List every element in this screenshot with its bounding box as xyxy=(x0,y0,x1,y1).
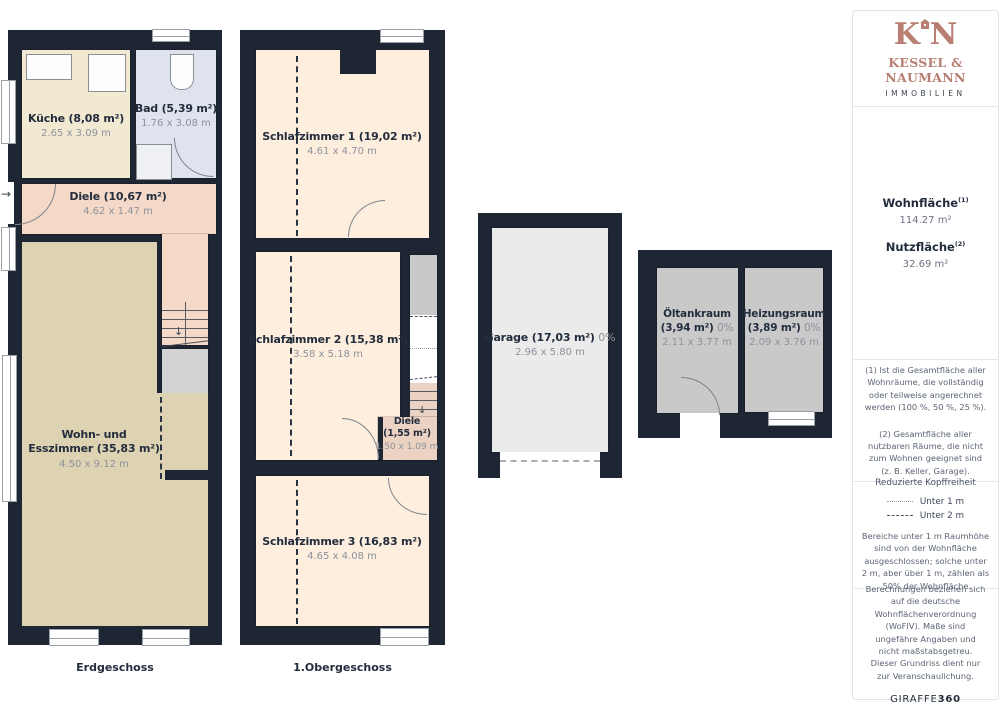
room-area: (3,94 m²) xyxy=(661,322,714,334)
stairs-down-arrow-icon: ↓ xyxy=(174,326,183,337)
room-label-bad: Bad (5,39 m²) 1.76 x 3.08 m xyxy=(126,102,226,130)
wall-segment xyxy=(340,44,376,74)
footnotes-section: (1) Ist die Gesamtfläche aller Wohnräume… xyxy=(853,359,998,481)
room-name: Heizungsraum xyxy=(739,308,829,322)
room-name: Garage (17,03 m²) xyxy=(485,331,595,344)
wohnflaeche-text: Wohnfläche xyxy=(882,196,958,210)
window xyxy=(380,628,429,646)
oeltankraum-door-opening xyxy=(680,413,720,438)
brand-subtitle: IMMOBILIEN xyxy=(885,89,965,98)
room-label-kueche: Küche (8,08 m²) 2.65 x 3.09 m xyxy=(6,112,146,140)
room-name: Bad (5,39 m²) xyxy=(135,102,217,115)
nutzflaeche-value: 32.69 m² xyxy=(903,259,949,270)
giraffe360-credit: GIRAFFE360 xyxy=(890,694,961,705)
floorplan-page: ↓ → Küche (8,08 m²) 2.65 x 3. xyxy=(0,0,1000,707)
stove-icon xyxy=(88,54,126,92)
wohnflaeche-label: Wohnfläche(1) xyxy=(882,196,968,210)
footnote-1: (1) Ist die Gesamtfläche aller Wohnräume… xyxy=(853,364,998,414)
plan-erdgeschoss: ↓ → Küche (8,08 m²) 2.65 x 3. xyxy=(8,30,222,645)
garage-door-line xyxy=(500,460,600,462)
stairs-down-arrow-icon: ↓ xyxy=(418,406,426,416)
room-label-heizungsraum: Heizungsraum (3,89 m²) 0% 2.09 x 3.76 m xyxy=(739,308,829,349)
logo-monogram: K N xyxy=(894,20,958,50)
room-name: Küche (8,08 m²) xyxy=(28,112,124,125)
room-dims: 1.76 x 3.08 m xyxy=(126,117,226,130)
room-dims: 2.09 x 3.76 m xyxy=(739,336,829,349)
credit-name: GIRAFFE xyxy=(890,694,938,705)
room-label-schlafzimmer1: Schlafzimmer 1 (19,02 m²) 4.61 x 4.70 m xyxy=(242,130,442,158)
room-percent: 0% xyxy=(717,322,733,334)
room-area: (3,89 m²) xyxy=(748,322,801,334)
room-name: Schlafzimmer 1 (19,02 m²) xyxy=(262,130,422,143)
nutzflaeche-label: Nutzfläche(2) xyxy=(886,240,966,254)
room-name: Diele (10,67 m²) xyxy=(69,190,166,203)
info-sidebar: K N KESSEL & NAUMANN IMMOBILIEN Wohnfläc… xyxy=(852,10,999,700)
disclaimer-section: Berechnungen beziehen sich auf die deuts… xyxy=(853,588,998,699)
room-name: Öltankraum xyxy=(652,308,742,322)
room-name: Schlafzimmer 2 (15,38 m²) xyxy=(248,333,408,346)
house-icon xyxy=(921,23,929,29)
room-name: Schlafzimmer 3 (16,83 m²) xyxy=(262,535,422,548)
room-dims: 4.65 x 4.08 m xyxy=(242,550,442,563)
room-dims: 4.50 x 9.12 m xyxy=(14,458,174,471)
logo-letter-k: K xyxy=(894,20,920,50)
room-label-wohn-esszimmer: Wohn- und Esszimmer (35,83 m²) 4.50 x 9.… xyxy=(14,428,174,471)
room-label-garage: Garage (17,03 m²) 0% 2.96 x 5.80 m xyxy=(450,331,650,359)
floor-label-erdgeschoss: Erdgeschoss xyxy=(8,661,222,674)
nutzflaeche-text: Nutzfläche xyxy=(886,240,955,254)
room-name: Wohn- und xyxy=(14,428,174,442)
room-label-schlafzimmer2: Schlafzimmer 2 (15,38 m²) 3.58 x 5.18 m xyxy=(228,333,428,361)
window xyxy=(768,411,815,426)
wohnflaeche-value: 114.27 m² xyxy=(900,215,952,226)
brand-name: KESSEL & NAUMANN xyxy=(853,55,998,85)
stair-landing-eg xyxy=(162,349,208,393)
room-label-oeltankraum: Öltankraum (3,94 m²) 0% 2.11 x 3.77 m xyxy=(652,308,742,349)
room-dims: 4.62 x 1.47 m xyxy=(28,205,208,218)
room-label-diele-eg: Diele (10,67 m²) 4.62 x 1.47 m xyxy=(28,190,208,218)
room-dims: 1.50 x 1.09 m xyxy=(372,442,442,454)
headroom-legend-section: Reduzierte Kopffreiheit Unter 1 m Unter … xyxy=(853,481,998,588)
stairs-eg xyxy=(162,302,208,345)
entry-arrow-icon: → xyxy=(1,188,11,200)
legend-label: Unter 1 m xyxy=(920,497,964,507)
footnote-2: (2) Gesamtfläche aller nutzbaren Räume, … xyxy=(853,428,998,478)
room-percent: 0% xyxy=(804,322,820,334)
window xyxy=(49,629,99,646)
wall-segment xyxy=(165,470,208,480)
credit-number: 360 xyxy=(938,694,961,705)
room-dims: 2.65 x 3.09 m xyxy=(6,127,146,140)
window xyxy=(152,29,190,42)
room-percent: 0% xyxy=(598,331,615,344)
room-area: (1,55 m²) xyxy=(372,428,442,440)
sink-icon xyxy=(26,54,72,80)
plan-garage: Garage (17,03 m²) 0% 2.96 x 5.80 m xyxy=(478,213,622,478)
garage-door-opening xyxy=(500,452,600,478)
under-2m-line xyxy=(410,316,437,317)
floor-label-obergeschoss: 1.Obergeschoss xyxy=(240,661,445,674)
window xyxy=(1,227,16,271)
shower-icon xyxy=(136,144,172,180)
toilet-icon xyxy=(170,54,194,90)
room-name: Esszimmer (35,83 m²) xyxy=(14,442,174,456)
window xyxy=(142,629,190,646)
room-label-schlafzimmer3: Schlafzimmer 3 (16,83 m²) 4.65 x 4.08 m xyxy=(242,535,442,563)
room-name: Diele xyxy=(372,416,442,428)
plan-outbuilding: Öltankraum (3,94 m²) 0% 2.11 x 3.77 m He… xyxy=(638,250,832,438)
legend-under-2m: Unter 2 m xyxy=(887,511,964,521)
legend-under-1m: Unter 1 m xyxy=(887,497,964,507)
nutzflaeche-footnote-ref: (2) xyxy=(955,240,965,248)
dashed-line-icon xyxy=(887,515,913,516)
void-area xyxy=(410,255,437,315)
dotted-line-icon xyxy=(887,501,913,502)
room-dims: 2.96 x 5.80 m xyxy=(450,346,650,359)
disclaimer-text: Berechnungen beziehen sich auf die deuts… xyxy=(853,583,998,683)
plan-obergeschoss: ↓ Schlafzimmer 1 (19,02 m²) 4.61 x 4.70 … xyxy=(240,30,445,645)
room-dims: 2.11 x 3.77 m xyxy=(652,336,742,349)
headroom-title: Reduzierte Kopffreiheit xyxy=(875,478,976,488)
area-summary-section: Wohnfläche(1) 114.27 m² Nutzfläche(2) 32… xyxy=(853,106,998,359)
room-dims: 4.61 x 4.70 m xyxy=(242,145,442,158)
room-label-diele-og: Diele (1,55 m²) 1.50 x 1.09 m xyxy=(372,416,442,453)
logo-section: K N KESSEL & NAUMANN IMMOBILIEN xyxy=(853,11,998,106)
legend-label: Unter 2 m xyxy=(920,511,964,521)
room-dims: 3.58 x 5.18 m xyxy=(228,348,428,361)
wohnflaeche-footnote-ref: (1) xyxy=(958,196,968,204)
window xyxy=(380,29,424,43)
logo-letter-n: N xyxy=(930,20,957,50)
